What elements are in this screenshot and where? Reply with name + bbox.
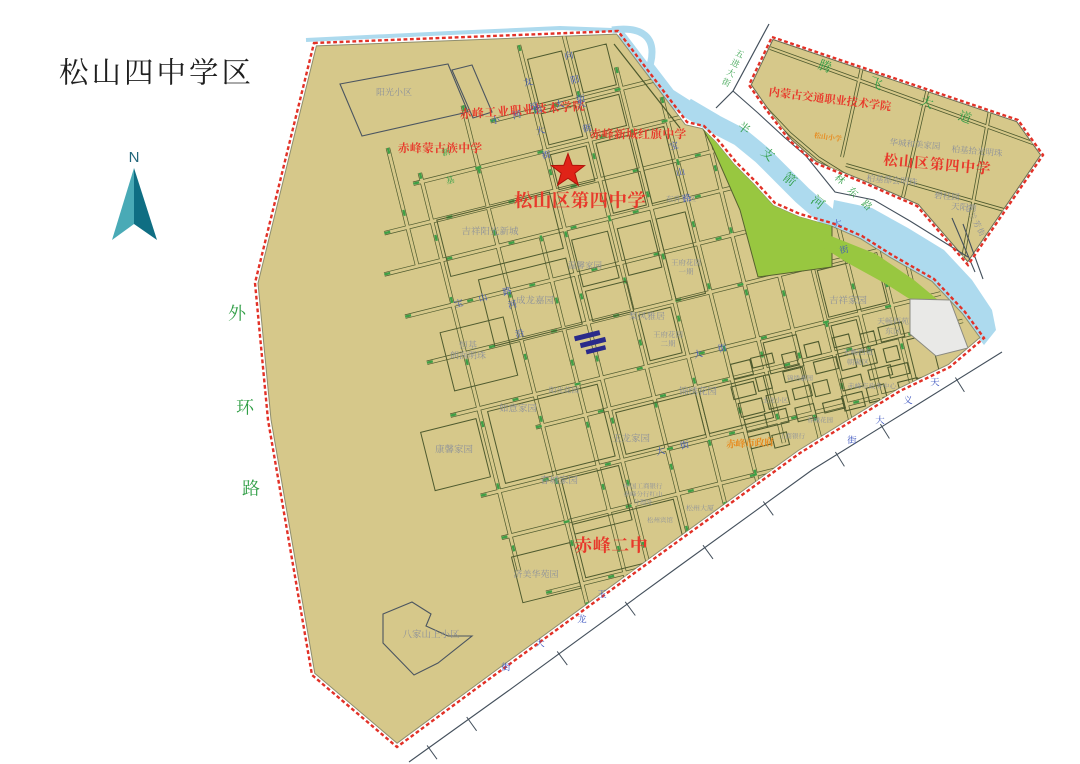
svg-text:N: N xyxy=(129,149,140,166)
